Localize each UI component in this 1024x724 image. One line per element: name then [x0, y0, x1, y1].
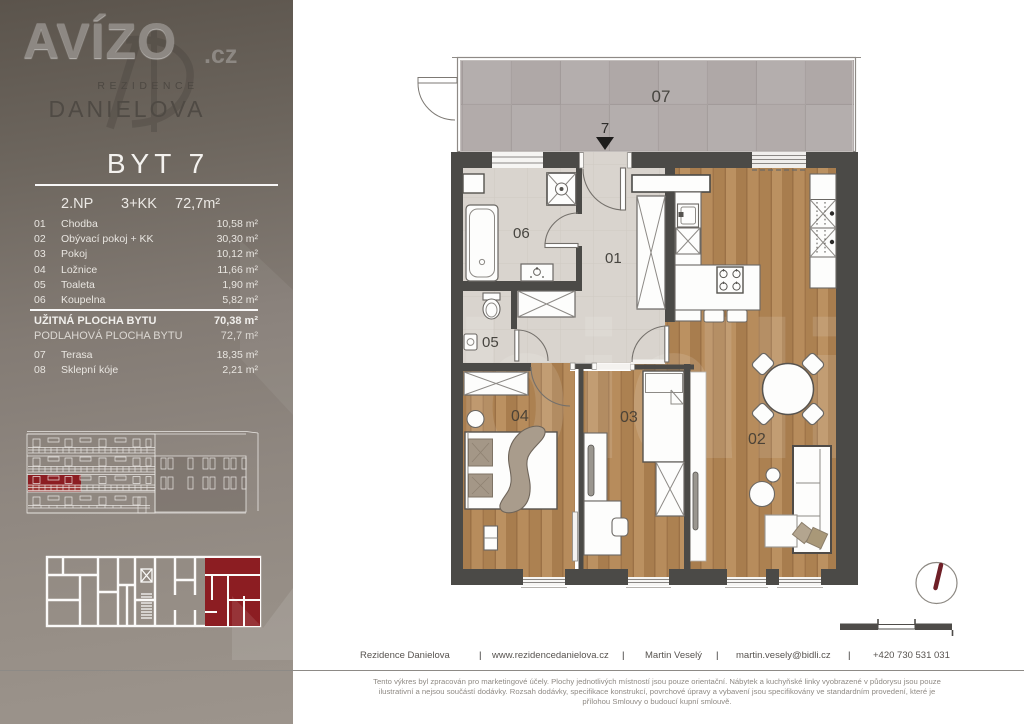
svg-text:03: 03 — [620, 409, 638, 426]
svg-text:05: 05 — [482, 334, 499, 351]
svg-text:7: 7 — [601, 120, 609, 137]
svg-text:04: 04 — [511, 408, 529, 425]
svg-text:07: 07 — [652, 87, 671, 106]
svg-text:01: 01 — [605, 250, 622, 267]
svg-text:02: 02 — [748, 431, 766, 448]
svg-text:06: 06 — [513, 225, 530, 242]
